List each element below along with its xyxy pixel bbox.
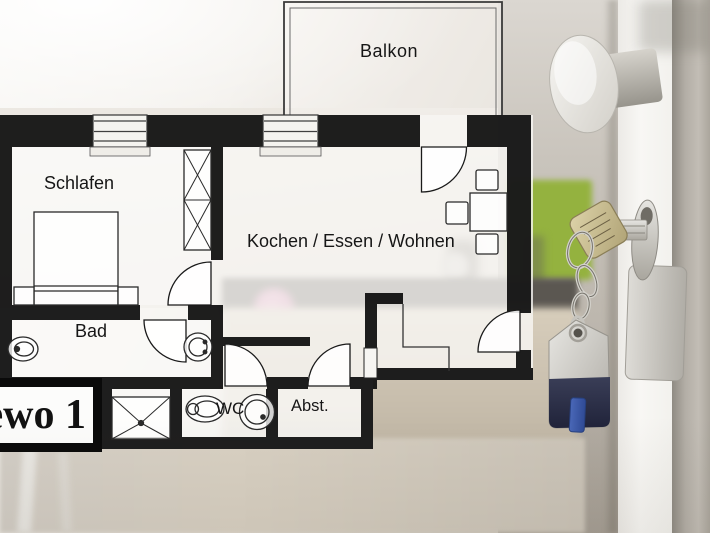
key-fob-tab xyxy=(569,398,586,433)
scene: Balkon Schlafen Kochen / Essen / Wohnen … xyxy=(0,0,710,533)
door-hardware xyxy=(0,0,710,533)
key-fob-icon xyxy=(549,320,610,432)
key-head xyxy=(567,198,630,261)
key-fob-hole xyxy=(574,329,583,338)
door-knob-icon xyxy=(544,25,667,137)
lock-plate-icon xyxy=(625,265,687,381)
